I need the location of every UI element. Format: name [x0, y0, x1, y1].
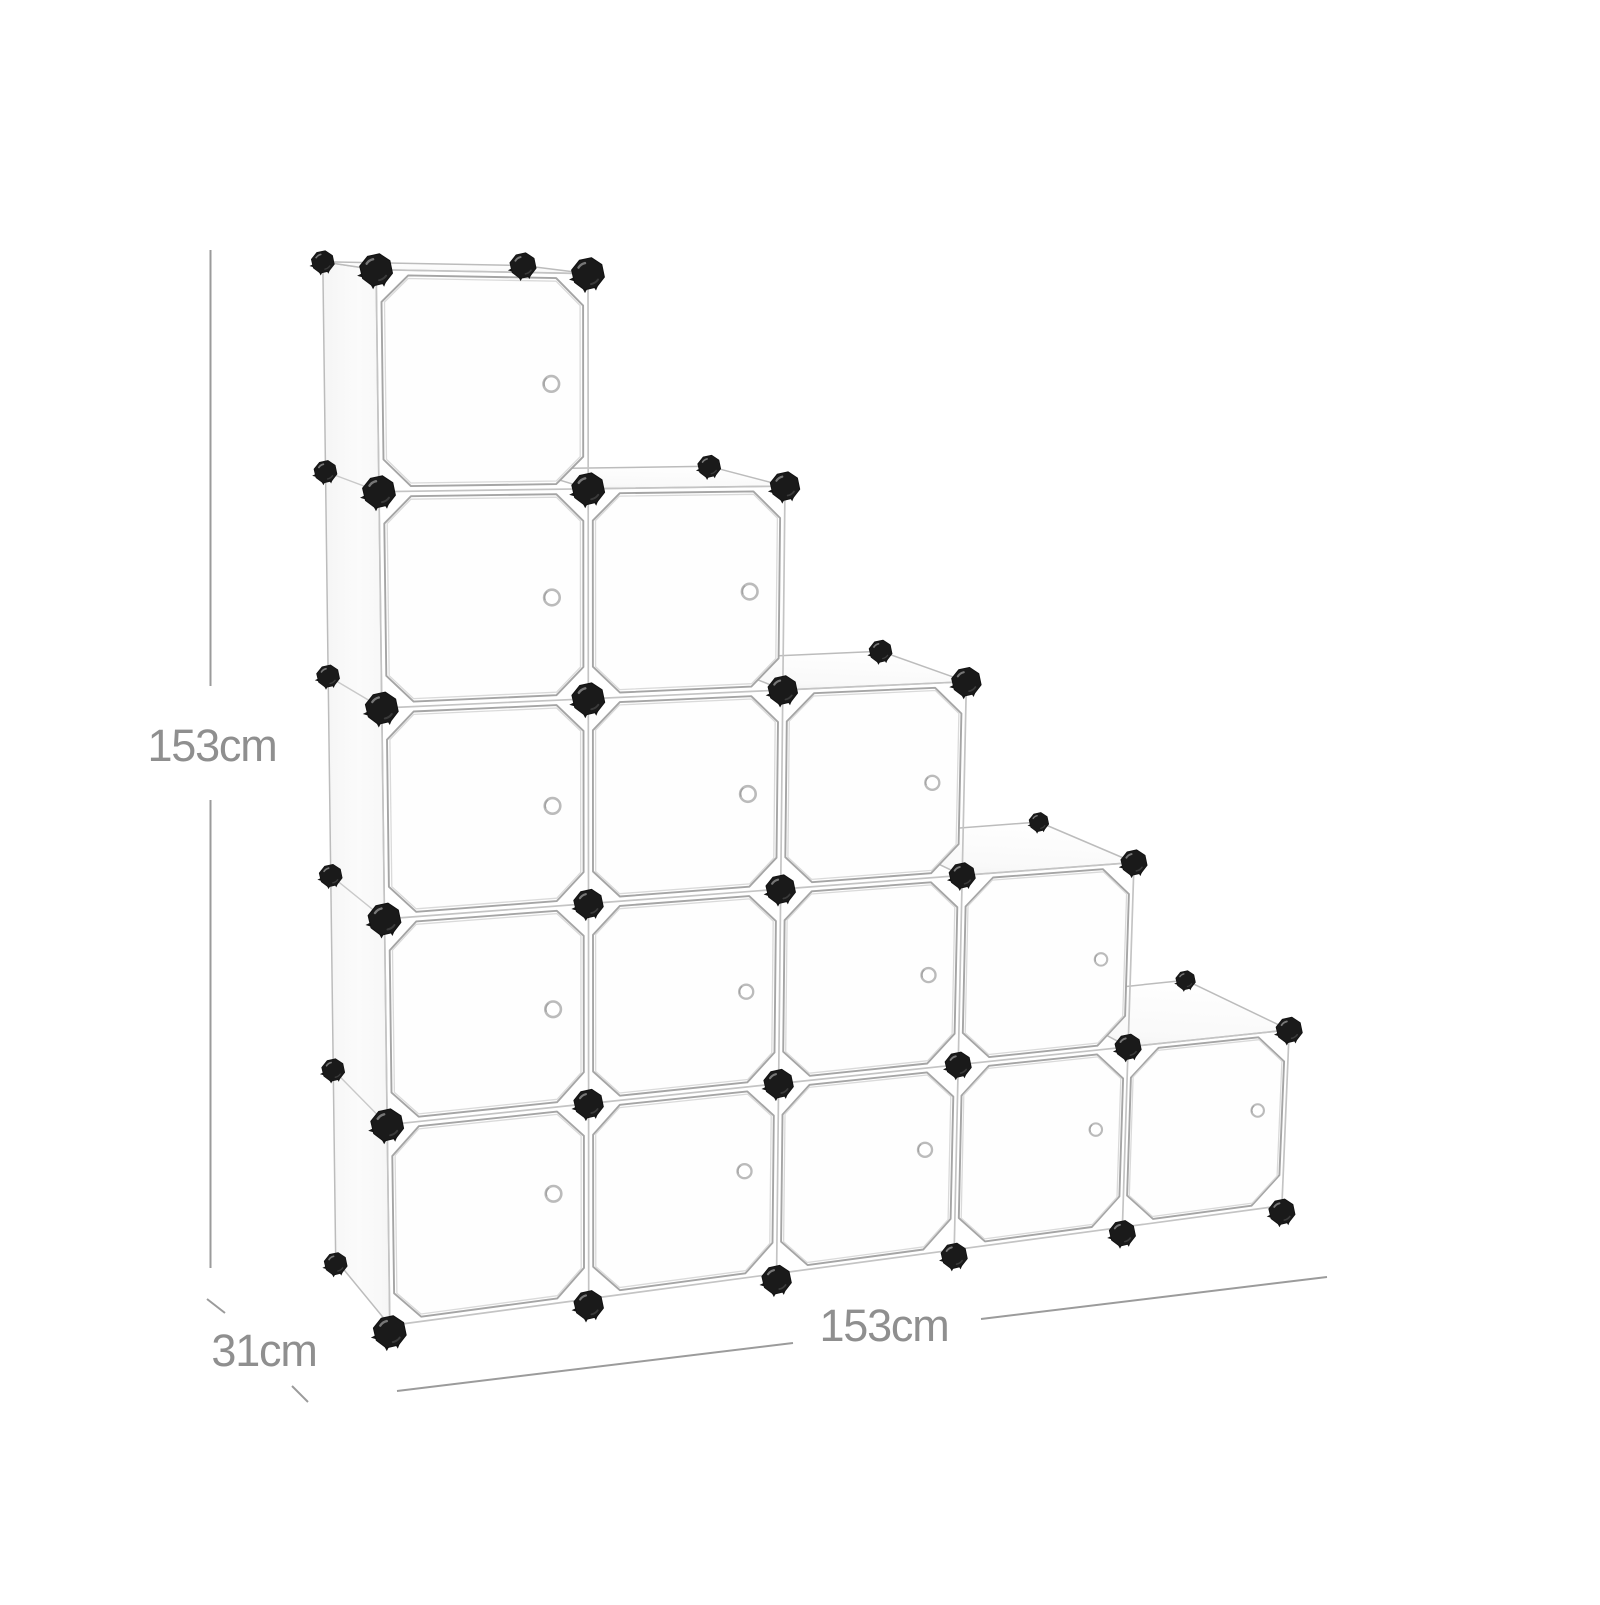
svg-text:153cm: 153cm	[819, 1300, 948, 1351]
svg-text:153cm: 153cm	[147, 720, 276, 771]
svg-text:31cm: 31cm	[211, 1325, 316, 1376]
